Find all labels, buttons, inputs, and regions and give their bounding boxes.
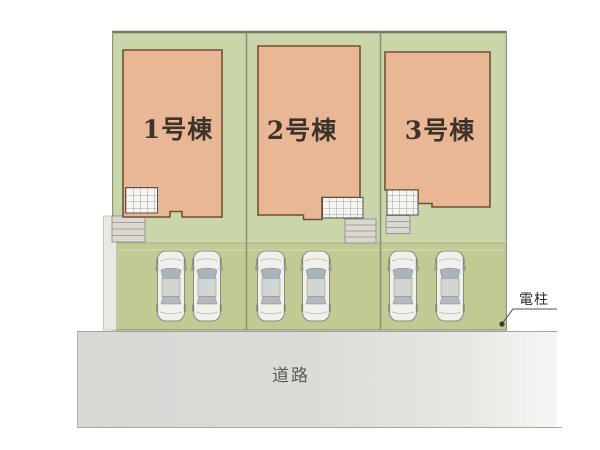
building-2-label: 2号棟 — [267, 116, 337, 145]
road: 道路 — [77, 331, 562, 428]
road-label: 道路 — [272, 366, 310, 386]
road-surface — [77, 331, 557, 428]
car-icon — [387, 251, 419, 321]
lot-2: 2号棟 — [258, 46, 363, 220]
porch-1 — [126, 188, 158, 214]
building-3-label: 3号棟 — [405, 116, 475, 145]
lot-1: 1号棟 — [123, 50, 222, 217]
lot-3: 3号棟 — [385, 52, 490, 215]
car-icon — [255, 251, 287, 321]
site-plan-canvas: 道路 1号棟 — [0, 0, 600, 450]
porch-2 — [323, 198, 364, 219]
car-icon — [191, 251, 223, 321]
entry-steps-2 — [345, 219, 376, 243]
utility-pole-label: 電柱 — [519, 292, 549, 308]
porch-3 — [387, 190, 418, 215]
car-icon — [300, 251, 332, 321]
entry-steps-1 — [112, 216, 145, 242]
car-icon — [155, 251, 187, 321]
building-1-label: 1号棟 — [143, 115, 213, 144]
car-icon — [434, 251, 466, 321]
entry-steps-3 — [386, 216, 410, 234]
site-plan: 道路 1号棟 — [0, 0, 600, 450]
